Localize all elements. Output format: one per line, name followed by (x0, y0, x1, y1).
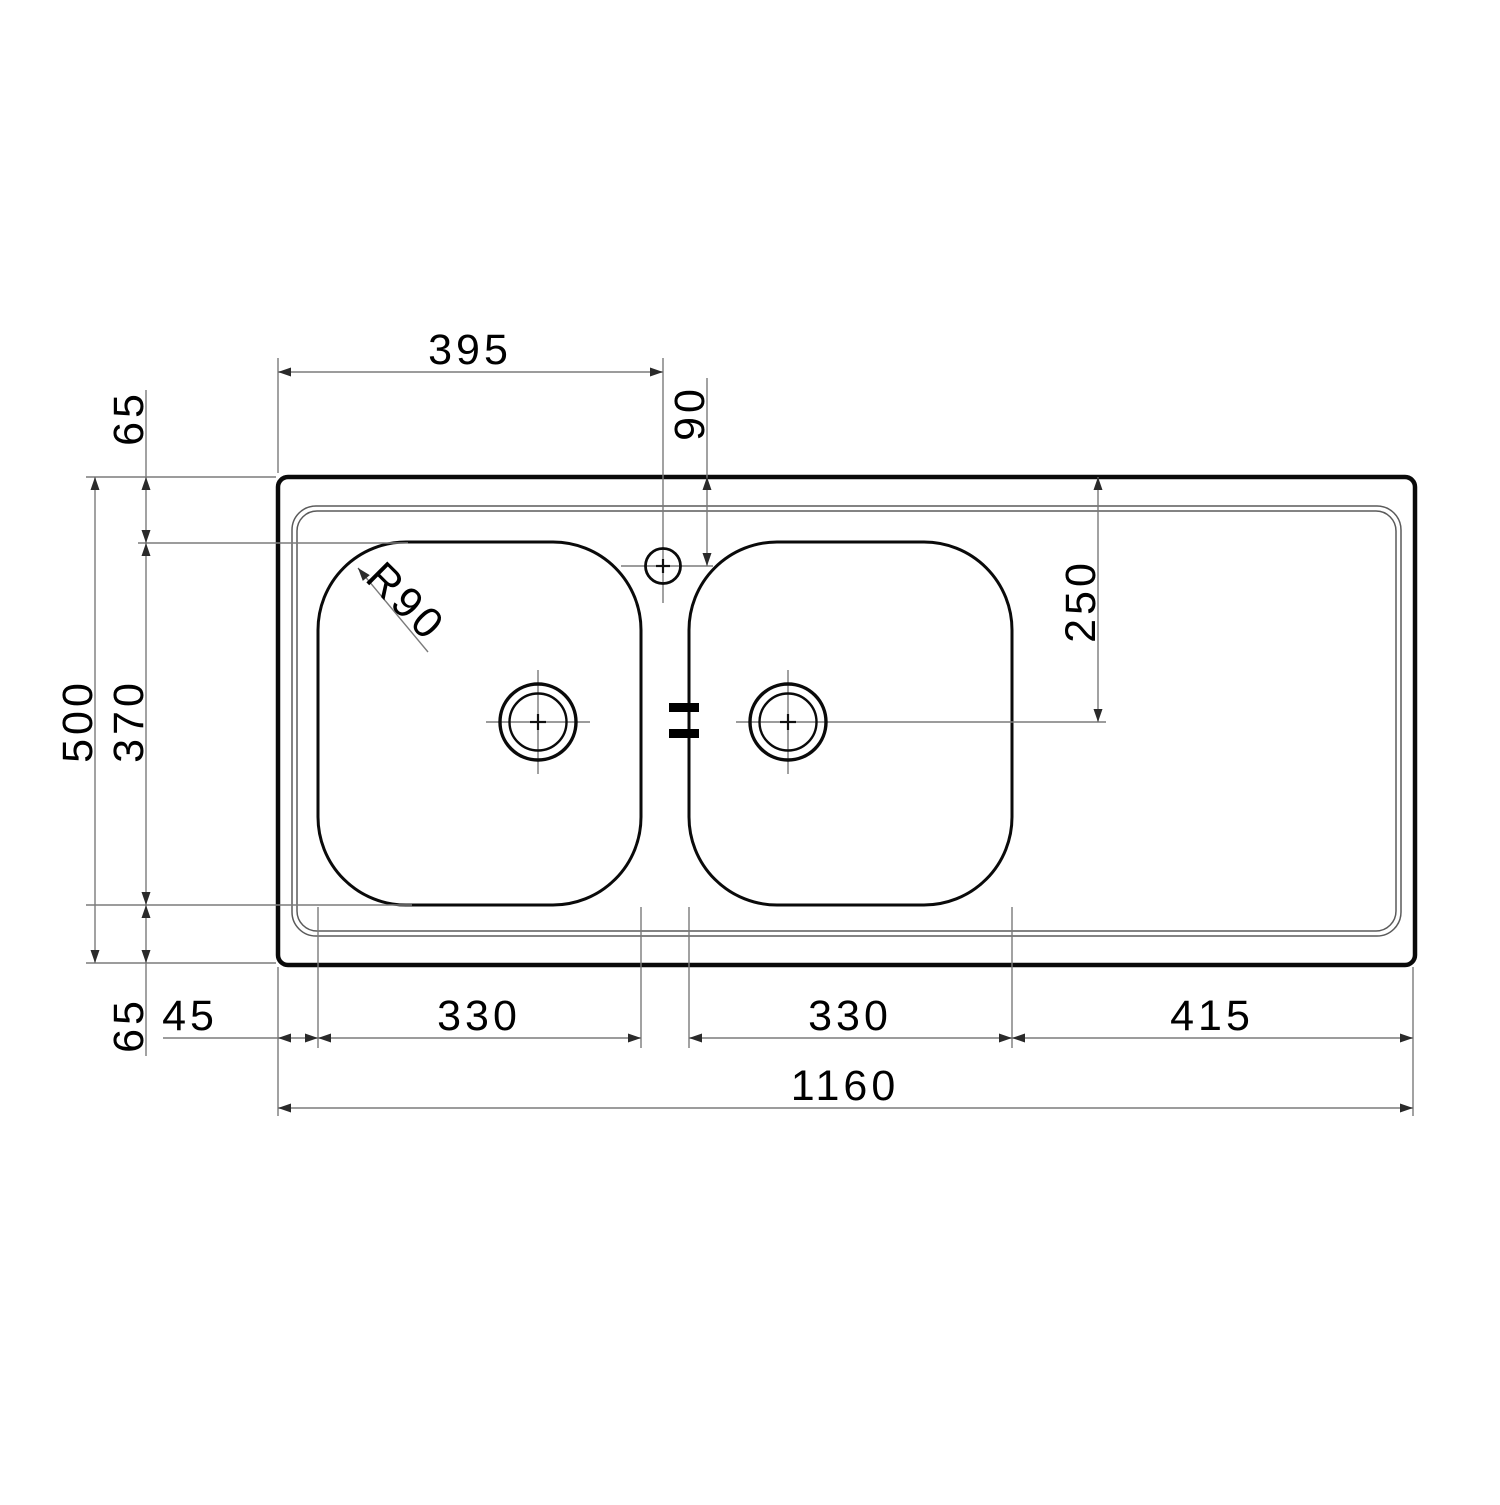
dim-label-rim-bottom: 65 (105, 997, 153, 1053)
overflow-bar (669, 729, 699, 738)
bowl-right-outline (689, 542, 1012, 905)
dim-label-bowl-left-width: 330 (437, 992, 521, 1040)
dim-label-left-rim: 45 (162, 992, 218, 1040)
dim-label-rim-top: 65 (105, 390, 153, 446)
dim-label-drainer-width: 415 (1170, 992, 1254, 1040)
dim-label-overall-depth: 500 (54, 679, 102, 763)
overflow-bar (669, 703, 699, 712)
sink-body (278, 477, 1415, 965)
dim-label-faucet-offset: 90 (666, 385, 714, 441)
dim-label-bowl-right-width: 330 (808, 992, 892, 1040)
dim-label-top-width: 395 (428, 326, 512, 374)
dim-label-overall-width: 1160 (791, 1062, 899, 1110)
sink-technical-drawing: 395 90 65 500 370 65 45 330 330 415 1160… (0, 0, 1500, 1500)
dim-label-bowl-depth: 370 (105, 679, 153, 763)
dim-label-drain-offset: 250 (1057, 559, 1105, 643)
